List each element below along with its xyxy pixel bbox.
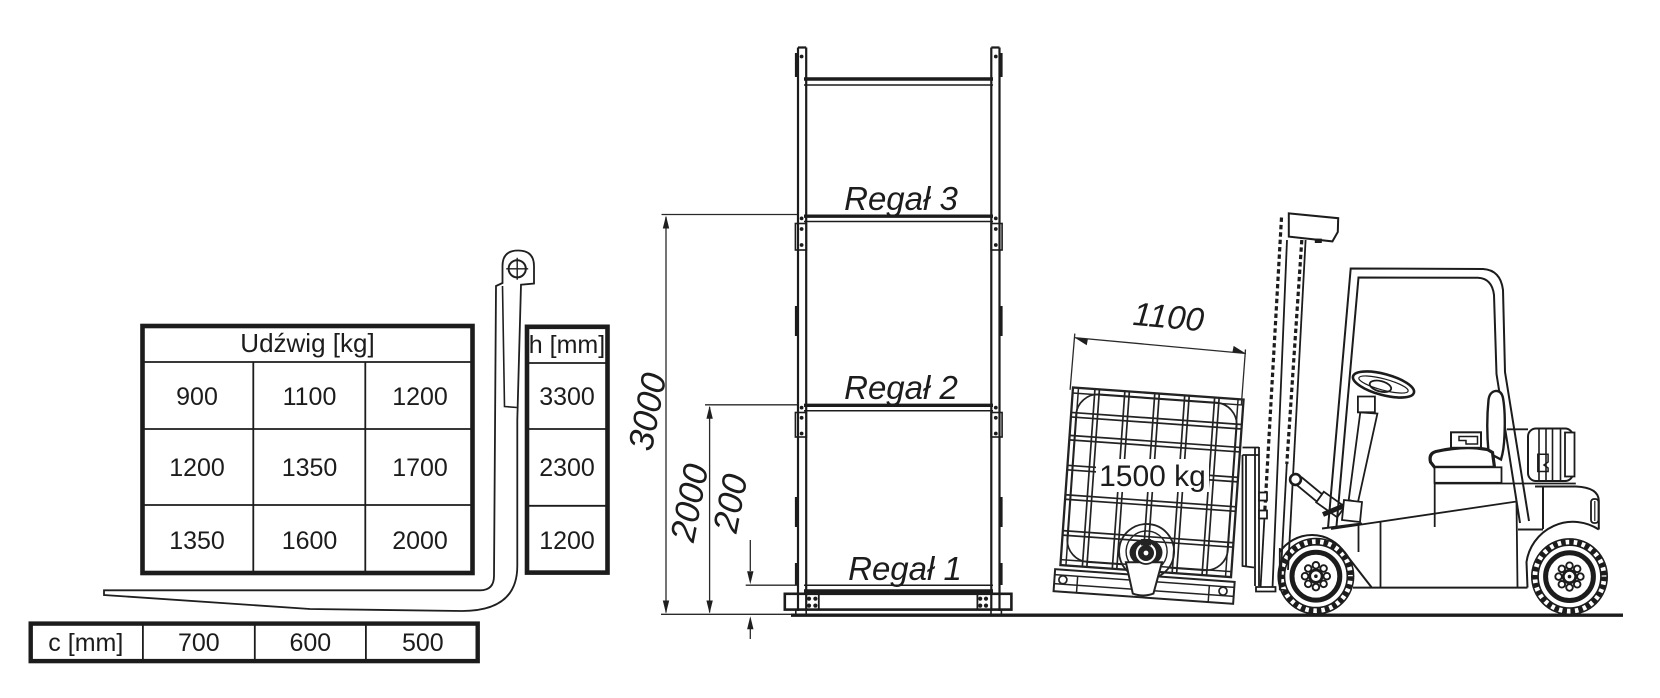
svg-text:1200: 1200 xyxy=(169,454,225,482)
svg-text:1500 kg: 1500 kg xyxy=(1099,460,1206,493)
svg-text:Udźwig [kg]: Udźwig [kg] xyxy=(240,328,374,358)
svg-text:1200: 1200 xyxy=(392,383,448,411)
svg-text:900: 900 xyxy=(176,383,218,411)
svg-text:600: 600 xyxy=(289,629,331,657)
svg-text:2000: 2000 xyxy=(392,527,448,555)
svg-text:Regał 1: Regał 1 xyxy=(848,550,962,587)
svg-text:700: 700 xyxy=(178,629,220,657)
svg-text:1200: 1200 xyxy=(539,527,595,555)
svg-text:1100: 1100 xyxy=(1132,295,1207,338)
svg-text:Regał 2: Regał 2 xyxy=(844,369,958,406)
svg-text:3300: 3300 xyxy=(539,383,595,411)
svg-text:2300: 2300 xyxy=(539,454,595,482)
svg-text:1100: 1100 xyxy=(283,383,337,411)
svg-text:h [mm]: h [mm] xyxy=(529,331,605,359)
svg-text:Regał 3: Regał 3 xyxy=(844,180,958,217)
svg-text:500: 500 xyxy=(402,629,444,657)
svg-text:1350: 1350 xyxy=(282,454,338,482)
svg-text:1600: 1600 xyxy=(282,527,338,555)
svg-text:1700: 1700 xyxy=(392,454,448,482)
svg-text:c [mm]: c [mm] xyxy=(48,629,123,657)
svg-text:1350: 1350 xyxy=(169,527,225,555)
